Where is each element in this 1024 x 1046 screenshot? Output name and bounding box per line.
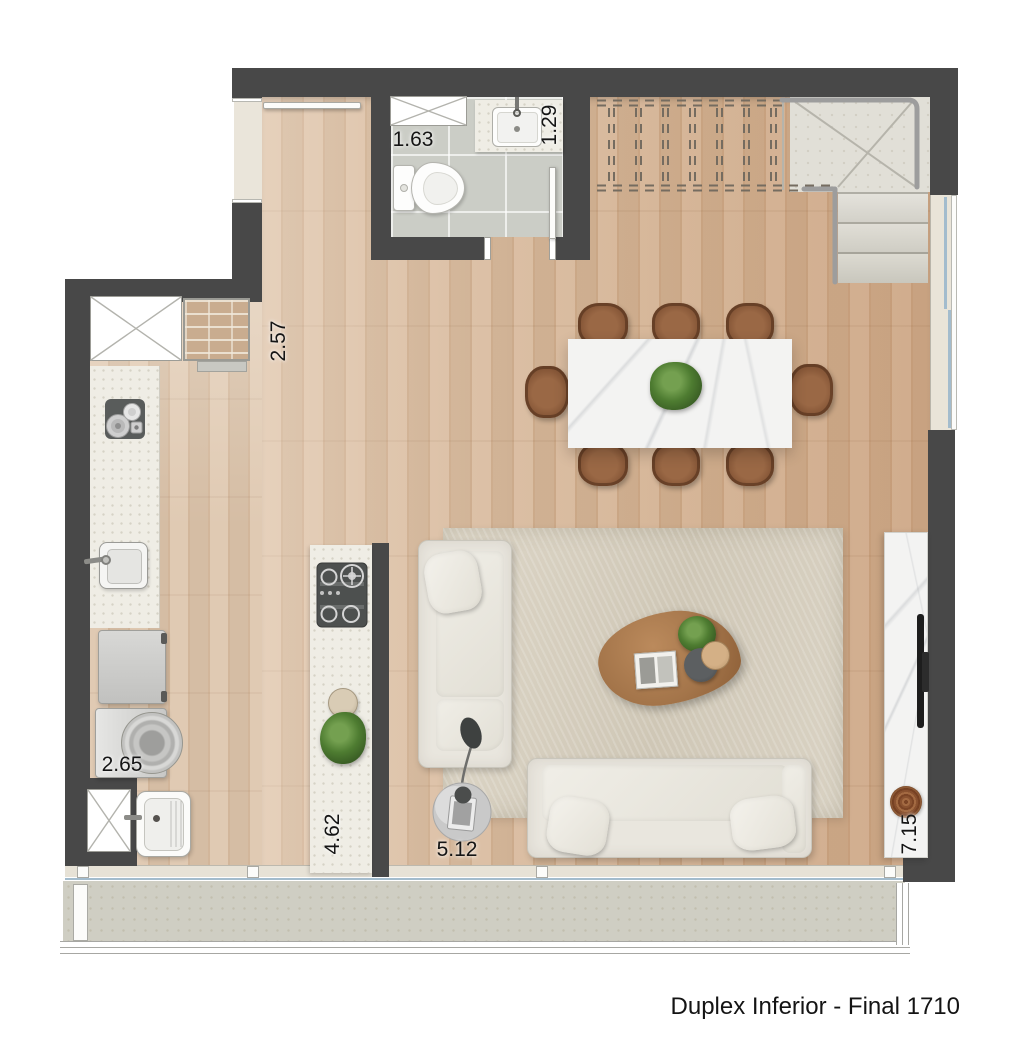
bathroom-door-jamb [484,237,491,260]
wall-right-lower [928,430,955,882]
bathroom-door-leaf [549,167,556,239]
stair-tread [838,222,928,252]
toilet-bowl-inner [423,172,458,205]
entry-jamb-bottom [232,199,262,203]
window-frame [951,195,957,430]
island-plant [320,712,366,764]
sill-mullion [536,866,548,878]
coffee-table-wood-disc [701,641,730,670]
wall-corner-bottom-right [903,858,955,882]
wall-bathroom-bottom-right [552,237,590,260]
stair-landing [790,97,930,192]
brick-column-sill [197,361,247,372]
sill-mullion [884,866,896,878]
entry-door-leaf [263,102,361,109]
balcony-railing-bottom [60,941,910,958]
island-half-wall [372,543,389,877]
refrigerator-handle [161,633,167,644]
bathroom-shaft [390,96,467,126]
brick-column [183,298,250,361]
wall-hall-left-upper [232,68,262,102]
refrigerator-handle [161,691,167,702]
dimension-label-bathroom: 1.63 [393,128,434,152]
dimension-label-living-depth: 7.15 [898,814,922,855]
kitchen-shaft [90,296,182,361]
dimension-label-living: 5.12 [437,838,478,862]
balcony-door-leaf [73,884,88,941]
balcony-slab [63,881,905,943]
laundry-shaft [87,789,131,852]
kitchen-sink [99,542,148,589]
coffee-table-book-page [657,656,674,683]
stair-tread [838,192,928,222]
washbasin-drain [514,126,520,132]
dining-chair [525,366,569,418]
coffee-table-book [634,651,678,690]
plan-caption: Duplex Inferior - Final 1710 [615,993,960,1021]
wall-right-upper [930,68,958,195]
dimension-label-laundry: 2.65 [102,753,143,777]
tv-bracket [922,652,929,692]
window-glass-pane [948,310,951,428]
dining-chair [789,364,833,416]
dining-chair [578,442,628,486]
bathroom-door-jamb [549,237,556,260]
floor-plan-canvas: 1.63 1.29 2.57 2.65 4.62 5.12 7.15 Duple… [0,0,1024,1046]
kitchen-sink-basin [107,549,142,584]
coffee-table-book-page [639,657,656,684]
wall-bathroom-left [371,97,391,260]
dimension-label-hall: 2.57 [267,321,291,362]
refrigerator [98,630,166,704]
sill-mullion [247,866,259,878]
window-glass-pane [944,197,947,309]
entry-opening [234,101,262,202]
laundry-faucet [124,815,142,820]
stair-tread [838,252,928,283]
washbasin-faucet-knob [513,109,521,117]
laundry-tub [136,791,191,857]
wall-top [232,68,958,97]
stair-steps [838,192,928,283]
laundry-drain [153,815,160,822]
kitchen-faucet-joint [101,555,111,565]
toilet-flush-button [400,184,408,192]
dining-chair [726,442,774,486]
laundry-tub-ridges [170,801,182,847]
dining-chair [652,442,700,486]
sill-mullion [77,866,89,878]
sofa-seat-cushion [436,699,504,751]
dimension-label-bathroom-sink: 1.29 [538,105,562,146]
balcony-railing-right [896,883,912,945]
entry-jamb-top [232,98,262,102]
wall-bathroom-bottom-left [371,237,487,260]
dimension-label-kitchen-island: 4.62 [321,814,345,855]
wall-left [65,302,90,780]
sofa-pillow [544,794,612,859]
wall-bathroom-right [563,97,590,237]
sofa-pillow [728,793,798,852]
